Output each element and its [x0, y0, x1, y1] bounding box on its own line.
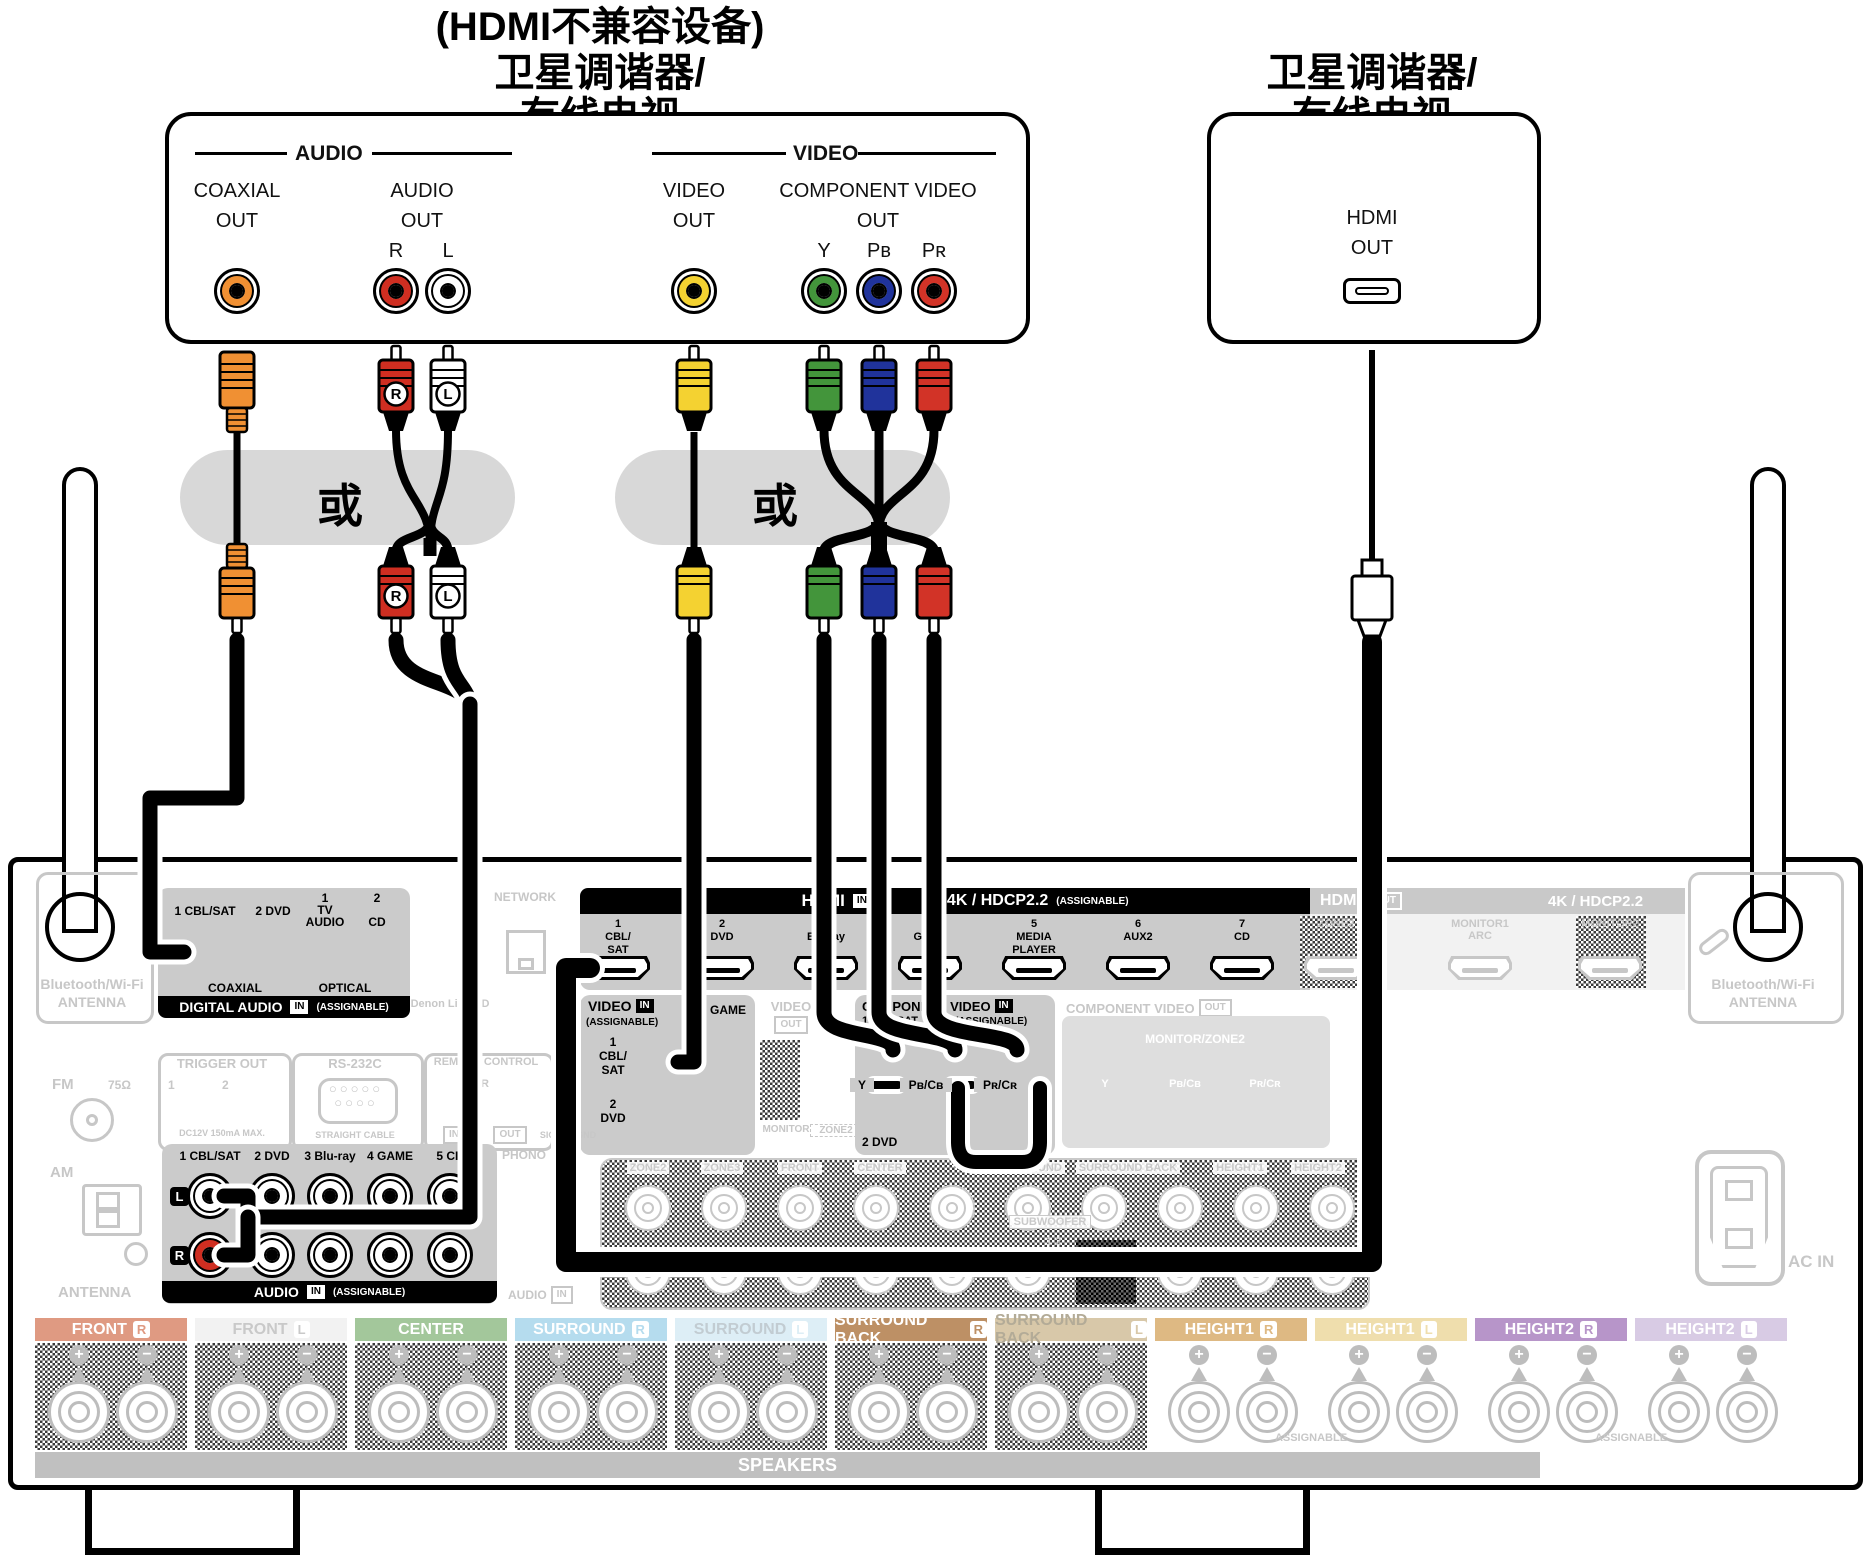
- speaker-group-label: HEIGHT1R: [1155, 1318, 1307, 1341]
- audio-in-r-jack: [249, 1232, 295, 1278]
- hdmi-in-port: [690, 956, 754, 980]
- audio-out-l-label: L: [428, 240, 468, 262]
- speaker-post-plus: +: [47, 1345, 111, 1455]
- left-device-title-1: 卫星调谐器/: [300, 50, 900, 96]
- audio-in-r-jack: [187, 1232, 233, 1278]
- speaker-post-plus: +: [207, 1345, 271, 1455]
- speaker-post-minus: −: [755, 1345, 819, 1455]
- denon-link-label: Denon Link HD: [408, 998, 492, 1010]
- wifi-antenna-right: [1750, 467, 1786, 933]
- preout-jack: [1157, 1185, 1203, 1231]
- component-in-row1-label: 1 CBL/SAT: [862, 1015, 918, 1028]
- hdmi-out-label-2: OUT: [1302, 237, 1442, 259]
- hdmi-out-port: [1578, 956, 1642, 980]
- component-out-prcr: Pʀ/Cʀ: [1242, 1078, 1288, 1090]
- speaker-post-minus: −: [275, 1345, 339, 1455]
- speaker-group-label: FRONTL: [195, 1318, 347, 1341]
- preout-jack: [1005, 1249, 1051, 1295]
- audio-l-badge: L: [170, 1187, 189, 1206]
- svg-text:L: L: [443, 588, 452, 605]
- component-in-assignable: (ASSIGNABLE): [955, 1015, 1027, 1028]
- component-video-out-label-2: OUT: [778, 210, 978, 232]
- speaker-terminal-area: +−: [355, 1343, 507, 1450]
- speaker-group-surround-l: SURROUNDL+−: [675, 1318, 827, 1450]
- video-out-title: VIDEO: [758, 999, 824, 1014]
- hdmi-out-spec: 4K / HDCP2.2: [1548, 893, 1643, 910]
- audio-in-l-jack: [427, 1173, 473, 1219]
- left-device-note: (HDMI不兼容设备): [300, 4, 900, 50]
- device-coaxial-out-jack: [214, 268, 260, 314]
- preout-jack: [625, 1249, 671, 1295]
- speaker-post-plus: +: [367, 1345, 431, 1455]
- am-label: AM: [50, 1164, 73, 1181]
- optical-sub-label: OPTICAL: [310, 982, 380, 995]
- speaker-post-plus: +: [1487, 1345, 1551, 1455]
- video-in-cblsat-2: CBL/: [596, 1050, 630, 1063]
- fm-jack: [70, 1098, 114, 1142]
- preout-jack: [1157, 1249, 1203, 1295]
- wifi-antenna-left: [62, 467, 98, 933]
- device-audio-out-l-jack: [425, 268, 471, 314]
- audio-in-title-bar: AUDIO IN (ASSIGNABLE): [162, 1281, 497, 1303]
- video-in-dvd-2: DVD: [596, 1112, 630, 1125]
- antenna-label: ANTENNA: [58, 1284, 131, 1301]
- component-in-badge: IN: [995, 999, 1013, 1013]
- hdmi-in-port-label: 7CD: [1197, 918, 1287, 944]
- video-in-title-row: VIDEO IN: [588, 999, 654, 1013]
- component-out-title-row: COMPONENT VIDEO OUT: [1066, 999, 1232, 1017]
- preout-jack: [929, 1185, 975, 1231]
- fm-label: FM: [52, 1076, 74, 1093]
- hdmi-in-port-label: 4GAME: [885, 918, 975, 944]
- remote-in-badge: IN: [432, 1124, 476, 1144]
- am-slot-1: [96, 1192, 120, 1210]
- hdmi-in-port: [1106, 956, 1170, 980]
- speaker-group-label: FRONTR: [35, 1318, 187, 1341]
- hdmi-in-title: HDMI: [801, 891, 844, 911]
- hdmi-out-title: HDMI: [1320, 892, 1361, 910]
- ac-in-label: AC IN: [1788, 1252, 1834, 1272]
- speaker-post-plus: +: [1167, 1345, 1231, 1455]
- hdmi-in-header: HDMI IN 4K / HDCP2.2 (ASSIGNABLE): [580, 888, 1350, 914]
- component-out-monitor-zone2: MONITOR/ZONE2: [1090, 1032, 1300, 1046]
- coaxial-sub-label: COAXIAL: [200, 982, 270, 995]
- speaker-group-label: SURROUNDR: [515, 1318, 667, 1341]
- digital-audio-jack1-label: 1 CBL/SAT: [160, 905, 250, 918]
- audio-r-badge: R: [170, 1246, 189, 1265]
- remote-ir-label: IR: [478, 1078, 489, 1090]
- audio-in-title: AUDIO: [254, 1284, 299, 1300]
- hdmi-out-header: HDMI OUT 4K / HDCP2.2: [1310, 888, 1685, 914]
- hdmi-in-badge: IN: [853, 894, 871, 908]
- speaker-post-minus: −: [595, 1345, 659, 1455]
- hdmi-in-spec: 4K / HDCP2.2: [947, 892, 1048, 910]
- speaker-terminal-area: +−: [675, 1343, 827, 1450]
- speaker-group-surround-back-l: SURROUND BACKL+−: [995, 1318, 1147, 1450]
- gnd-screw: [124, 1242, 148, 1266]
- device-comp-y-jack: [801, 268, 847, 314]
- audio-group-line-l: [195, 152, 287, 155]
- hdmi-in-port-label: 6AUX2: [1093, 918, 1183, 944]
- speaker-post-plus: +: [687, 1345, 751, 1455]
- audio-group-label: AUDIO: [295, 142, 363, 166]
- coaxial-out-label-2: OUT: [167, 210, 307, 232]
- preout-label: SURROUND BACK: [1073, 1162, 1183, 1174]
- preout-jack: [853, 1249, 899, 1295]
- optical2-num: 2: [362, 892, 392, 905]
- subwoofer-label: SUBWOOFER: [990, 1216, 1110, 1228]
- connection-diagram: (HDMI不兼容设备) 卫星调谐器/ 有线电视 卫星调谐器/ 有线电视 或 或 …: [0, 0, 1866, 1567]
- speaker-group-label: HEIGHT2L: [1635, 1318, 1787, 1341]
- svg-text:R: R: [391, 386, 402, 403]
- component-out-pbcb: Pʙ/Cʙ: [1162, 1078, 1208, 1090]
- hdmi-in-assignable: (ASSIGNABLE): [1056, 896, 1128, 907]
- audio-in-r-jack: [367, 1232, 413, 1278]
- preout-jack: [1309, 1185, 1355, 1231]
- comp-pb-label: Pʙ: [859, 240, 899, 262]
- digital-audio-title-bar: DIGITAL AUDIO IN (ASSIGNABLE): [158, 996, 410, 1018]
- digital-audio-in-badge: IN: [290, 1000, 308, 1014]
- trigger-note: DC12V 150mA MAX.: [158, 1128, 286, 1138]
- audio-out-label-2: OUT: [352, 210, 492, 232]
- hdmi-in-port-label: 2DVD: [677, 918, 767, 944]
- preout-jack: [625, 1185, 671, 1231]
- audio-in-l-jack: [249, 1173, 295, 1219]
- coaxial-out-label-1: COAXIAL: [167, 180, 307, 202]
- component-in-title-row: COMPONENT VIDEO IN: [862, 999, 1013, 1013]
- audio-group-line-r: [372, 152, 512, 155]
- component-out-title: COMPONENT VIDEO: [1066, 1001, 1195, 1016]
- digital-audio-assignable: (ASSIGNABLE): [316, 1002, 388, 1013]
- speaker-group-label: SURROUNDL: [675, 1318, 827, 1341]
- preout-label: CENTER: [825, 1162, 935, 1174]
- video-out-badge: OUT: [773, 1014, 809, 1034]
- video-in-assignable: (ASSIGNABLE): [586, 1016, 658, 1029]
- speaker-post-minus: −: [1715, 1345, 1779, 1455]
- fm-ohm-label: 75Ω: [108, 1078, 131, 1092]
- video-out-dither: [760, 1040, 800, 1120]
- audio-in-r-jack: [307, 1232, 353, 1278]
- am-slot-2: [96, 1210, 120, 1228]
- speaker-group-height1-r: HEIGHT1R+−: [1155, 1318, 1307, 1450]
- component-out-badge: OUT: [1199, 999, 1232, 1017]
- trigger-jack2-num: 2: [222, 1078, 229, 1092]
- right-device-title-1: 卫星调谐器/: [1072, 50, 1672, 96]
- audio-out-label-1: AUDIO: [352, 180, 492, 202]
- audio-in-gray-badge: IN: [551, 1286, 573, 1304]
- ac-pin-2: [1725, 1228, 1753, 1249]
- hdmi-in-port: [898, 956, 962, 980]
- video-in-game-label: 3 GAME: [700, 1004, 746, 1017]
- speaker-post-minus: −: [115, 1345, 179, 1455]
- speaker-group-front-r: FRONTR+−: [35, 1318, 187, 1450]
- hdmi-in-port: [1210, 956, 1274, 980]
- subwoofer-nums: 1 2: [1046, 1236, 1061, 1248]
- speaker-post-minus: −: [435, 1345, 499, 1455]
- preout-label: SURROUND: [975, 1162, 1085, 1174]
- speaker-post-plus: +: [1007, 1345, 1071, 1455]
- speaker-group-surround-r: SURROUNDR+−: [515, 1318, 667, 1450]
- hdmi-out-label-1: HDMI: [1302, 207, 1442, 229]
- component-out-y: Y: [1085, 1078, 1125, 1090]
- preout-jack: [701, 1249, 747, 1295]
- bt-antenna-label-left-1: Bluetooth/Wi-Fi: [36, 976, 148, 992]
- speaker-group-front-l: FRONTL+−: [195, 1318, 347, 1450]
- digital-audio-jack2-label: 2 DVD: [240, 905, 306, 918]
- speaker-group-label: HEIGHT2R: [1475, 1318, 1627, 1341]
- preout-jack: [701, 1185, 747, 1231]
- hdmi-out-port-label: MONITOR1ARC: [1430, 918, 1530, 942]
- svg-text:L: L: [443, 386, 452, 403]
- video-in-cblsat-3: SAT: [596, 1064, 630, 1077]
- signal-gnd-label: SIGNAL GND: [526, 1130, 610, 1140]
- trigger-jack1-num: 1: [168, 1078, 175, 1092]
- video-out-label-1: VIDEO: [624, 180, 764, 202]
- bt-antenna-label-right-2: ANTENNA: [1688, 994, 1838, 1010]
- preout-jack: [853, 1185, 899, 1231]
- component-in-prcr-label: Pʀ/Cʀ: [974, 1078, 1026, 1092]
- comp-pr-label: Pʀ: [914, 240, 954, 262]
- audio-in-gray-row: AUDIO IN: [508, 1286, 573, 1304]
- device-audio-out-r-jack: [373, 268, 419, 314]
- preout-label: HEIGHT2: [1263, 1162, 1373, 1174]
- comp-y-label: Y: [804, 240, 844, 262]
- network-rj45-notch: [518, 958, 534, 970]
- preout-jack: [1233, 1185, 1279, 1231]
- optical1-label-b: AUDIO: [302, 916, 348, 929]
- video-in-cblsat-1: 1: [596, 1036, 630, 1049]
- speaker-terminal-area: +−: [35, 1343, 187, 1450]
- hdmi-in-port-label: 3Blu-ray: [781, 918, 871, 944]
- hdmi-out-port-label: ZONE2: [1286, 918, 1386, 930]
- speaker-group-label: SURROUND BACKR: [835, 1318, 987, 1341]
- speakers-bar: SPEAKERS: [35, 1452, 1540, 1478]
- trigger-out-title: TRIGGER OUT: [158, 1056, 286, 1071]
- component-in-pbcb-label: Pʙ/Cʙ: [900, 1078, 952, 1092]
- hdmi-in-port: [1002, 956, 1066, 980]
- bt-antenna-label-left-2: ANTENNA: [36, 994, 148, 1010]
- speaker-post-plus: +: [847, 1345, 911, 1455]
- optical2-label: CD: [362, 916, 392, 929]
- audio-in-l-jack: [307, 1173, 353, 1219]
- bt-antenna-label-right-1: Bluetooth/Wi-Fi: [1688, 976, 1838, 992]
- audio-out-r-label: R: [376, 240, 416, 262]
- assignable-height1: ASSIGNABLE: [1231, 1432, 1391, 1444]
- speaker-post-minus: −: [915, 1345, 979, 1455]
- video-in-dvd-1: 2: [596, 1098, 630, 1111]
- preout-jack: [929, 1249, 975, 1295]
- audio-in-assignable: (ASSIGNABLE): [333, 1287, 405, 1298]
- component-in-title: COMPONENT VIDEO: [862, 1000, 991, 1013]
- video-in-title: VIDEO: [588, 1000, 632, 1013]
- device-video-out-jack: [671, 268, 717, 314]
- speaker-terminal-area: +−: [835, 1343, 987, 1450]
- component-video-out-label-1: COMPONENT VIDEO: [778, 180, 978, 202]
- video-group-label: VIDEO: [793, 142, 858, 166]
- speaker-group-label: SURROUND BACKL: [995, 1318, 1147, 1341]
- rs232c-dots: ○○○○○○○○○: [326, 1082, 386, 1110]
- audio-in-l-jack: [367, 1173, 413, 1219]
- hdmi-out-port-slot: [1355, 287, 1389, 295]
- speaker-terminal-area: +−: [195, 1343, 347, 1450]
- digital-audio-title: DIGITAL AUDIO: [179, 999, 282, 1015]
- speaker-terminal-area: +−: [995, 1343, 1147, 1450]
- device-comp-pr-jack: [911, 268, 957, 314]
- video-group-line-r: [858, 152, 996, 155]
- component-in-y-label: Y: [850, 1078, 874, 1092]
- rs232c-title: RS-232C: [292, 1056, 418, 1071]
- rs232c-note: STRAIGHT CABLE: [292, 1130, 418, 1140]
- network-label: NETWORK: [492, 890, 558, 904]
- audio-in-badge: IN: [307, 1285, 325, 1299]
- speaker-group-surround-back-r: SURROUND BACKR+−: [835, 1318, 987, 1450]
- signal-gnd-screw: [556, 1078, 580, 1102]
- speaker-group-height2-l: HEIGHT2L+−: [1635, 1318, 1787, 1450]
- or-label-right: 或: [752, 470, 798, 536]
- speaker-post-minus: −: [1075, 1345, 1139, 1455]
- speaker-group-center: CENTER+−: [355, 1318, 507, 1450]
- video-group-line-l: [652, 152, 786, 155]
- hdmi-in-port-label: 1CBL/SAT: [573, 918, 663, 957]
- speaker-group-height2-r: HEIGHT2R+−: [1475, 1318, 1627, 1450]
- preout-jack: [1309, 1249, 1355, 1295]
- audio-in-gray-title: AUDIO: [508, 1288, 547, 1302]
- speaker-post-minus: −: [1395, 1345, 1459, 1455]
- hdmi-out-port-label: MONITOR2: [1560, 918, 1660, 930]
- video-out-label-2: OUT: [624, 210, 764, 232]
- or-label-left: 或: [317, 470, 363, 536]
- device-comp-pb-jack: [856, 268, 902, 314]
- preout-jack: [1233, 1249, 1279, 1295]
- audio-in-l-jack: [187, 1173, 233, 1219]
- hdmi-in-port: [586, 956, 650, 980]
- hdmi-in-port-label: 5MEDIAPLAYER: [989, 918, 1079, 957]
- hdmi-out-badge: OUT: [1369, 892, 1402, 910]
- hdmi-out-port: [1304, 956, 1368, 980]
- speaker-group-height1-l: HEIGHT1L+−: [1315, 1318, 1467, 1450]
- ac-pin-1: [1725, 1180, 1753, 1201]
- speaker-group-label: CENTER: [355, 1318, 507, 1341]
- remote-control-title: REMOTE CONTROL: [424, 1056, 548, 1068]
- speaker-post-plus: +: [527, 1345, 591, 1455]
- speaker-terminal-area: +−: [515, 1343, 667, 1450]
- assignable-height2: ASSIGNABLE: [1551, 1432, 1711, 1444]
- subwoofer-dither: [1076, 1240, 1136, 1304]
- audio-in-section: [162, 1144, 497, 1304]
- video-out-monitor-label: MONITOR: [755, 1124, 817, 1135]
- svg-text:R: R: [391, 588, 402, 605]
- component-in-row2-label: 2 DVD: [862, 1136, 897, 1149]
- preout-jack: [777, 1185, 823, 1231]
- phono-label: PHONO: [496, 1148, 552, 1162]
- audio-in-col-label: 5 CD: [410, 1150, 490, 1163]
- audio-in-r-jack: [427, 1232, 473, 1278]
- hdmi-in-port: [794, 956, 858, 980]
- video-in-badge: IN: [636, 999, 654, 1013]
- speaker-group-label: HEIGHT1L: [1315, 1318, 1467, 1341]
- hdmi-out-port: [1448, 956, 1512, 980]
- preout-jack: [777, 1249, 823, 1295]
